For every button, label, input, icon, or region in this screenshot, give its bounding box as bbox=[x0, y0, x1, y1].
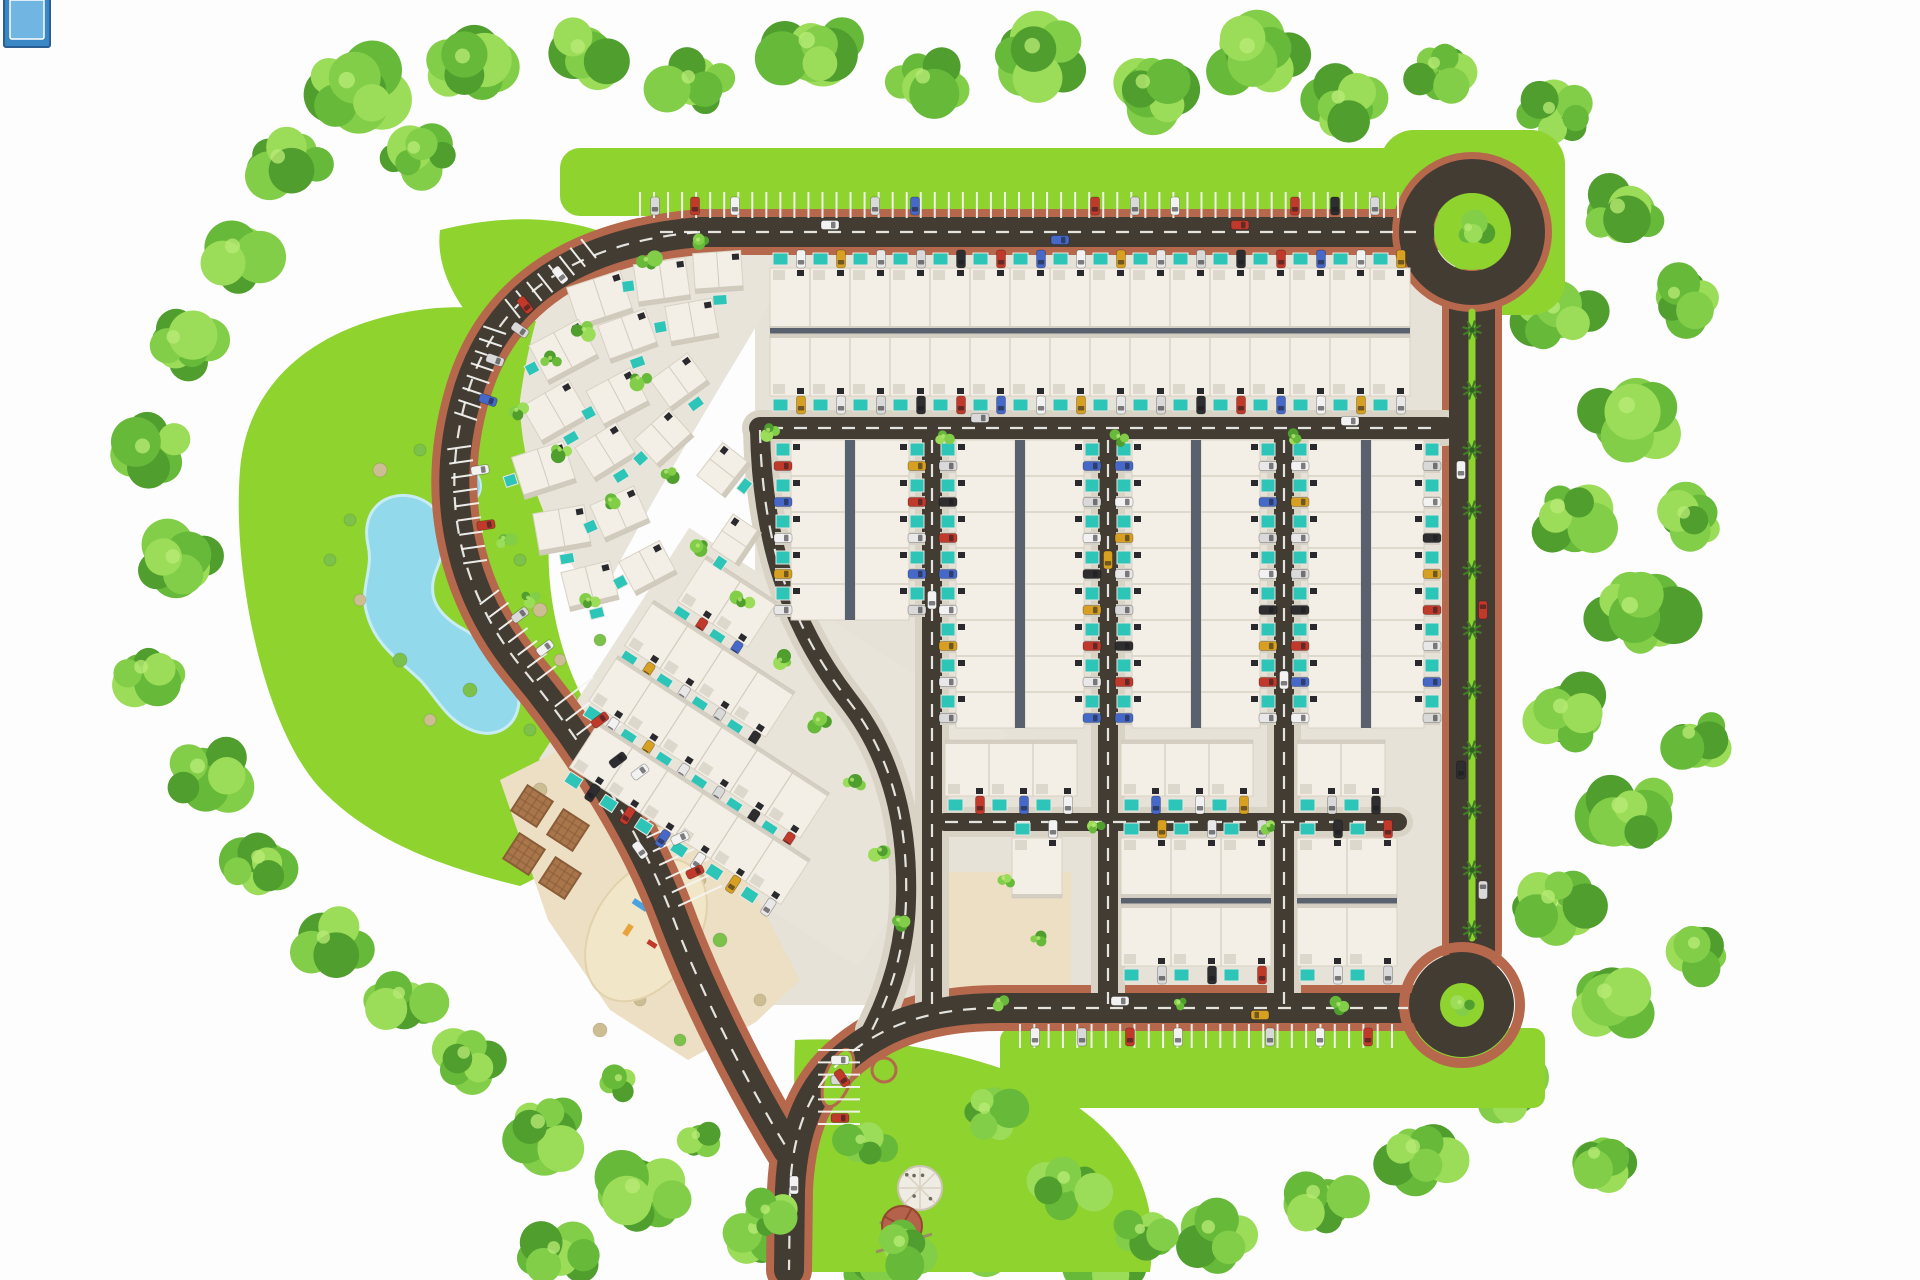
tree bbox=[304, 40, 412, 133]
car bbox=[1078, 1028, 1087, 1046]
car bbox=[837, 396, 846, 414]
car bbox=[877, 250, 886, 268]
car bbox=[476, 519, 495, 530]
car bbox=[1115, 642, 1133, 651]
car bbox=[1331, 197, 1340, 215]
car bbox=[1117, 250, 1126, 268]
car bbox=[691, 197, 700, 215]
tree bbox=[150, 309, 230, 382]
tree bbox=[1206, 10, 1311, 96]
tree bbox=[644, 47, 736, 114]
car bbox=[908, 570, 926, 579]
car bbox=[1291, 714, 1309, 723]
car bbox=[1083, 714, 1101, 723]
car bbox=[1104, 551, 1113, 569]
car bbox=[1328, 796, 1337, 814]
car bbox=[1091, 197, 1100, 215]
car bbox=[1423, 606, 1441, 615]
car bbox=[1334, 966, 1343, 984]
car bbox=[997, 250, 1006, 268]
car bbox=[1259, 642, 1277, 651]
car bbox=[1291, 678, 1309, 687]
car bbox=[1077, 396, 1086, 414]
car bbox=[1316, 1028, 1325, 1046]
tree bbox=[1586, 173, 1665, 243]
car bbox=[1384, 820, 1393, 838]
sport-courts bbox=[0, 0, 50, 47]
car bbox=[1423, 570, 1441, 579]
car bbox=[797, 250, 806, 268]
block-1 bbox=[774, 440, 926, 620]
car bbox=[971, 414, 989, 423]
tree bbox=[1660, 712, 1731, 770]
car bbox=[1397, 396, 1406, 414]
car bbox=[1031, 1028, 1040, 1046]
car bbox=[1037, 250, 1046, 268]
tree bbox=[380, 123, 456, 191]
car bbox=[1197, 250, 1206, 268]
car bbox=[1384, 966, 1393, 984]
car bbox=[1158, 966, 1167, 984]
car bbox=[939, 534, 957, 543]
car bbox=[1364, 1028, 1373, 1046]
car bbox=[1291, 642, 1309, 651]
tree bbox=[219, 833, 299, 896]
car bbox=[1259, 534, 1277, 543]
car bbox=[837, 250, 846, 268]
car bbox=[1317, 396, 1326, 414]
car bbox=[1208, 820, 1217, 838]
car bbox=[939, 642, 957, 651]
tree bbox=[1666, 926, 1727, 987]
block-3 bbox=[1115, 440, 1277, 728]
car bbox=[1083, 534, 1101, 543]
tree bbox=[1283, 1171, 1369, 1233]
car bbox=[1251, 1011, 1269, 1020]
car bbox=[1037, 396, 1046, 414]
tree bbox=[168, 737, 255, 813]
car bbox=[1083, 642, 1101, 651]
car bbox=[1083, 606, 1101, 615]
tree bbox=[1583, 572, 1702, 654]
block-2 bbox=[939, 440, 1101, 728]
car bbox=[1371, 197, 1380, 215]
tree bbox=[1572, 1137, 1637, 1193]
car bbox=[1291, 534, 1309, 543]
car bbox=[976, 796, 985, 814]
tree bbox=[432, 1028, 507, 1095]
car bbox=[1397, 250, 1406, 268]
car bbox=[1423, 534, 1441, 543]
car bbox=[1115, 534, 1133, 543]
car bbox=[1258, 966, 1267, 984]
car bbox=[1237, 396, 1246, 414]
tree bbox=[1522, 671, 1606, 752]
car bbox=[928, 591, 937, 609]
tree bbox=[112, 648, 185, 707]
car bbox=[939, 462, 957, 471]
car bbox=[1126, 1028, 1135, 1046]
car bbox=[1083, 678, 1101, 687]
car bbox=[908, 498, 926, 507]
car bbox=[790, 1176, 799, 1194]
car bbox=[1020, 796, 1029, 814]
car bbox=[1240, 796, 1249, 814]
car bbox=[1423, 714, 1441, 723]
tree bbox=[426, 25, 519, 100]
tree bbox=[1572, 967, 1655, 1038]
car bbox=[1115, 714, 1133, 723]
car bbox=[1197, 396, 1206, 414]
car bbox=[1291, 197, 1300, 215]
car bbox=[1111, 997, 1129, 1006]
tree bbox=[1373, 1124, 1469, 1196]
tree bbox=[363, 971, 449, 1030]
tree bbox=[677, 1122, 721, 1157]
tree bbox=[1657, 482, 1720, 552]
tree bbox=[245, 127, 334, 200]
car bbox=[1237, 250, 1246, 268]
car bbox=[1231, 221, 1249, 230]
tree bbox=[1575, 775, 1674, 849]
tree bbox=[1656, 262, 1719, 339]
car bbox=[731, 197, 740, 215]
tree bbox=[548, 17, 629, 90]
tree bbox=[995, 11, 1086, 103]
car bbox=[939, 570, 957, 579]
car bbox=[908, 534, 926, 543]
site-plan-canvas bbox=[0, 0, 1920, 1280]
gazebo-white bbox=[898, 1166, 942, 1210]
car bbox=[871, 197, 880, 215]
car bbox=[1115, 606, 1133, 615]
car bbox=[1115, 462, 1133, 471]
car bbox=[1171, 197, 1180, 215]
car bbox=[1064, 796, 1073, 814]
block-4 bbox=[1291, 440, 1441, 728]
car bbox=[1152, 796, 1161, 814]
car bbox=[470, 464, 489, 475]
tree bbox=[290, 906, 375, 978]
car bbox=[1334, 820, 1343, 838]
site-plan bbox=[0, 0, 1920, 1280]
car bbox=[1259, 678, 1277, 687]
car bbox=[1357, 396, 1366, 414]
block-2 bbox=[939, 440, 1101, 728]
car bbox=[1259, 570, 1277, 579]
car bbox=[1083, 498, 1101, 507]
tree bbox=[755, 17, 864, 86]
car bbox=[1457, 761, 1466, 779]
car bbox=[1291, 498, 1309, 507]
car bbox=[1266, 1028, 1275, 1046]
car bbox=[1196, 796, 1205, 814]
car bbox=[1049, 820, 1058, 838]
car bbox=[1280, 671, 1289, 689]
alley-h3-b bbox=[1297, 898, 1397, 904]
tree bbox=[138, 519, 224, 599]
car bbox=[1423, 498, 1441, 507]
car bbox=[1423, 642, 1441, 651]
tree bbox=[595, 1150, 692, 1232]
car bbox=[1423, 678, 1441, 687]
car bbox=[1077, 250, 1086, 268]
car bbox=[1115, 678, 1133, 687]
car bbox=[1083, 462, 1101, 471]
car bbox=[997, 396, 1006, 414]
tree bbox=[885, 47, 970, 119]
car bbox=[1341, 417, 1359, 426]
tree bbox=[1176, 1198, 1258, 1274]
car bbox=[1357, 250, 1366, 268]
car bbox=[1317, 250, 1326, 268]
car bbox=[1208, 966, 1217, 984]
car bbox=[1157, 396, 1166, 414]
car bbox=[939, 498, 957, 507]
car bbox=[939, 606, 957, 615]
block-1 bbox=[774, 440, 926, 620]
tree bbox=[517, 1221, 600, 1280]
car bbox=[939, 678, 957, 687]
car bbox=[1291, 462, 1309, 471]
car bbox=[831, 1056, 849, 1065]
tree bbox=[1512, 871, 1608, 946]
car bbox=[1115, 570, 1133, 579]
car bbox=[821, 221, 839, 230]
car bbox=[1083, 570, 1101, 579]
car bbox=[1372, 796, 1381, 814]
car bbox=[651, 197, 660, 215]
car bbox=[1115, 498, 1133, 507]
car bbox=[1259, 462, 1277, 471]
car bbox=[1479, 601, 1488, 619]
car bbox=[908, 606, 926, 615]
car bbox=[1174, 1028, 1183, 1046]
tree bbox=[1532, 484, 1618, 553]
tree bbox=[1300, 63, 1388, 143]
alley-h3-a bbox=[1121, 898, 1271, 904]
car bbox=[1277, 250, 1286, 268]
car bbox=[1479, 881, 1488, 899]
tree bbox=[1403, 44, 1477, 104]
car bbox=[1423, 462, 1441, 471]
car bbox=[939, 714, 957, 723]
car bbox=[774, 498, 792, 507]
car bbox=[774, 462, 792, 471]
tree bbox=[110, 412, 190, 489]
car bbox=[1259, 498, 1277, 507]
tree bbox=[1113, 58, 1200, 135]
car bbox=[1259, 714, 1277, 723]
car bbox=[908, 462, 926, 471]
car bbox=[1457, 461, 1466, 479]
car bbox=[1157, 250, 1166, 268]
car bbox=[1291, 606, 1309, 615]
car bbox=[911, 197, 920, 215]
car bbox=[917, 250, 926, 268]
car bbox=[1117, 396, 1126, 414]
block-4 bbox=[1291, 440, 1441, 728]
car bbox=[774, 534, 792, 543]
car bbox=[957, 250, 966, 268]
car bbox=[774, 606, 792, 615]
traffic-island-2 bbox=[872, 1058, 896, 1082]
car bbox=[917, 396, 926, 414]
car bbox=[877, 396, 886, 414]
block-3 bbox=[1115, 440, 1277, 728]
tree bbox=[599, 1064, 635, 1102]
car bbox=[1259, 606, 1277, 615]
tree bbox=[502, 1097, 584, 1175]
car bbox=[831, 1114, 849, 1123]
car bbox=[957, 396, 966, 414]
car bbox=[797, 396, 806, 414]
car bbox=[1158, 820, 1167, 838]
car bbox=[774, 570, 792, 579]
tree bbox=[1577, 378, 1681, 463]
car bbox=[1291, 570, 1309, 579]
tree bbox=[201, 220, 286, 293]
car bbox=[1277, 396, 1286, 414]
car bbox=[1131, 197, 1140, 215]
car bbox=[1051, 236, 1069, 245]
